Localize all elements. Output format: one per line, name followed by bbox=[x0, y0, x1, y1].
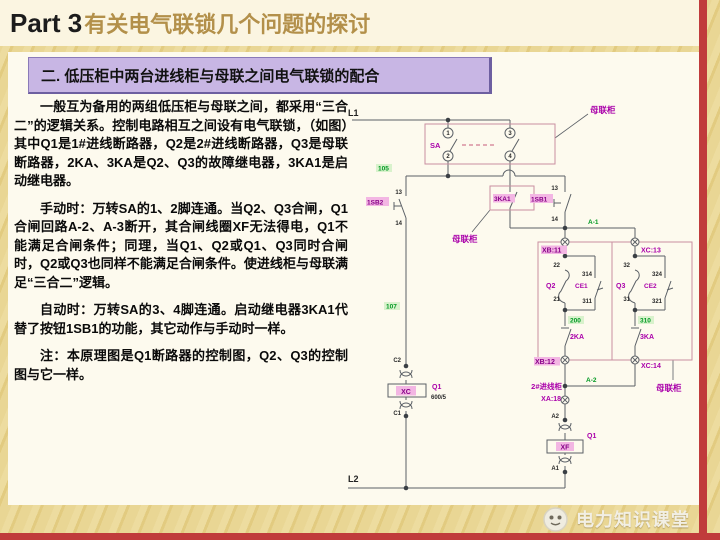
subtitle-box: 二. 低压柜中两台进线柜与母联之间电气联锁的配合 bbox=[28, 57, 492, 94]
sa-label: SA bbox=[430, 141, 441, 150]
terminal-xa18-label: XA:18 bbox=[541, 396, 561, 403]
slide: Part 3 有关电气联锁几个问题的探讨 二. 低压柜中两台进线柜与母联之间电气… bbox=[0, 0, 720, 540]
breaker-q3-label: Q3 bbox=[616, 283, 625, 290]
motor-pin-c1: C1 bbox=[393, 411, 401, 417]
incoming-cabinet-label: 2#进线柜 bbox=[531, 381, 562, 391]
wire-200-label: 200 bbox=[570, 318, 581, 325]
sa-pin-2: 2 bbox=[446, 154, 450, 160]
coil-pin-a1: A1 bbox=[551, 466, 559, 472]
aux-ce2-label: CE2 bbox=[644, 283, 657, 290]
brand-logo-icon bbox=[542, 506, 569, 533]
sa-pin-1: 1 bbox=[446, 131, 450, 137]
wire-310-label: 310 bbox=[640, 318, 651, 325]
title-prefix: Part 3 bbox=[10, 8, 82, 39]
paragraph-intro: 一般互为备用的两组低压柜与母联之间，都采用“三合二”的逻辑关系。控制电路相互之间… bbox=[14, 98, 348, 191]
ce1-pin-314: 314 bbox=[582, 272, 593, 278]
closing-coil-xf-label: XF bbox=[561, 445, 571, 452]
terminal-xb11-symbol bbox=[561, 238, 569, 246]
sb1-pin-13: 13 bbox=[551, 186, 558, 192]
content-card: 二. 低压柜中两台进线柜与母联之间电气联锁的配合 一般互为备用的两组低压柜与母联… bbox=[8, 52, 699, 505]
coupler-cabinet-mid-label: 母联柜 bbox=[452, 234, 478, 244]
paragraph-auto: 自动时：万转SA的3、4脚连通。启动继电器3KA1代替了按钮1SB1的功能，其它… bbox=[14, 301, 348, 338]
q2-pin-21: 21 bbox=[553, 297, 560, 303]
sa-pin-3: 3 bbox=[508, 131, 512, 137]
wire-107-label: 107 bbox=[386, 304, 397, 311]
button-1sb1-label: 1SB1 bbox=[531, 197, 548, 204]
terminal-xc14-label: XC:14 bbox=[641, 363, 661, 370]
motor-pin-c2: C2 bbox=[393, 358, 401, 364]
ce1-pin-311: 311 bbox=[582, 299, 592, 305]
sb2-pin-13: 13 bbox=[395, 190, 402, 196]
paragraph-note: 注：本原理图是Q1断路器的控制图，Q2、Q3的控制图与它一样。 bbox=[14, 347, 348, 384]
sa-pin-4: 4 bbox=[508, 154, 512, 160]
terminal-xc14-symbol bbox=[631, 356, 639, 364]
relay-2ka-label: 2KA bbox=[570, 334, 584, 341]
aux-ce1-label: CE1 bbox=[575, 283, 588, 290]
relay-3ka1-label: 3KA1 bbox=[494, 196, 511, 203]
rail-l1-label: L1 bbox=[348, 108, 359, 118]
ce2-pin-324: 324 bbox=[652, 272, 663, 278]
coupler-cabinet-top-label: 母联柜 bbox=[590, 105, 616, 115]
footer-brand: 电力知识课堂 bbox=[542, 503, 690, 535]
terminal-xc13-symbol bbox=[631, 238, 639, 246]
pin-numbers: 13 14 13 14 22 21 314 311 32 31 324 321 … bbox=[393, 186, 662, 472]
page-title: 有关电气联锁几个问题的探讨 bbox=[84, 7, 370, 39]
terminal-xb11-label: XB:11 bbox=[542, 248, 562, 255]
breaker-q2-label: Q2 bbox=[546, 283, 555, 290]
wire-a2-label: A-2 bbox=[586, 377, 597, 384]
body-text: 一般互为备用的两组低压柜与母联之间，都采用“三合二”的逻辑关系。控制电路相互之间… bbox=[14, 98, 348, 393]
terminal-xa18-symbol bbox=[561, 396, 569, 404]
xb-terminal-frame bbox=[538, 242, 612, 360]
sa-pin-numbers: 1 2 3 4 bbox=[446, 131, 512, 160]
paragraph-manual: 手动时：万转SA的1、2脚连通。当Q2、Q3合闸，Q1合闸回路A-2、A-3断开… bbox=[14, 200, 348, 293]
junction-dots bbox=[404, 118, 638, 491]
rail-l2-label: L2 bbox=[348, 474, 359, 484]
motor-breaker-label: Q1 bbox=[432, 384, 441, 391]
button-1sb2-label: 1SB2 bbox=[367, 200, 384, 207]
title-band: Part 3 有关电气联锁几个问题的探讨 bbox=[0, 0, 699, 46]
right-accent-bar bbox=[699, 0, 707, 534]
subtitle-text: 二. 低压柜中两台进线柜与母联之间电气联锁的配合 bbox=[29, 65, 379, 86]
q3-pin-31: 31 bbox=[623, 297, 630, 303]
motor-box-label: XC bbox=[401, 389, 411, 396]
ce2-pin-321: 321 bbox=[652, 299, 663, 305]
relay-3ka-label: 3KA bbox=[640, 334, 654, 341]
brand-name: 电力知识课堂 bbox=[576, 506, 690, 532]
terminal-xc13-label: XC:13 bbox=[641, 248, 661, 255]
terminal-xb12-label: XB:12 bbox=[535, 359, 555, 366]
q2-pin-22: 22 bbox=[553, 263, 560, 269]
q3-pin-32: 32 bbox=[623, 263, 630, 269]
sb1-pin-14: 14 bbox=[551, 217, 558, 223]
terminal-xb12-symbol bbox=[561, 356, 569, 364]
coupler-cabinet-right-label: 母联柜 bbox=[656, 383, 682, 393]
wire-105-label: 105 bbox=[378, 166, 389, 173]
coil-breaker-q1-label: Q1 bbox=[587, 433, 596, 440]
motor-rating-label: 600/5 bbox=[431, 395, 447, 401]
wire-a1-label: A-1 bbox=[588, 219, 599, 226]
sb2-pin-14: 14 bbox=[395, 221, 402, 227]
coil-pin-a2: A2 bbox=[551, 414, 559, 420]
circuit-diagram: 1 2 3 4 bbox=[340, 98, 698, 502]
